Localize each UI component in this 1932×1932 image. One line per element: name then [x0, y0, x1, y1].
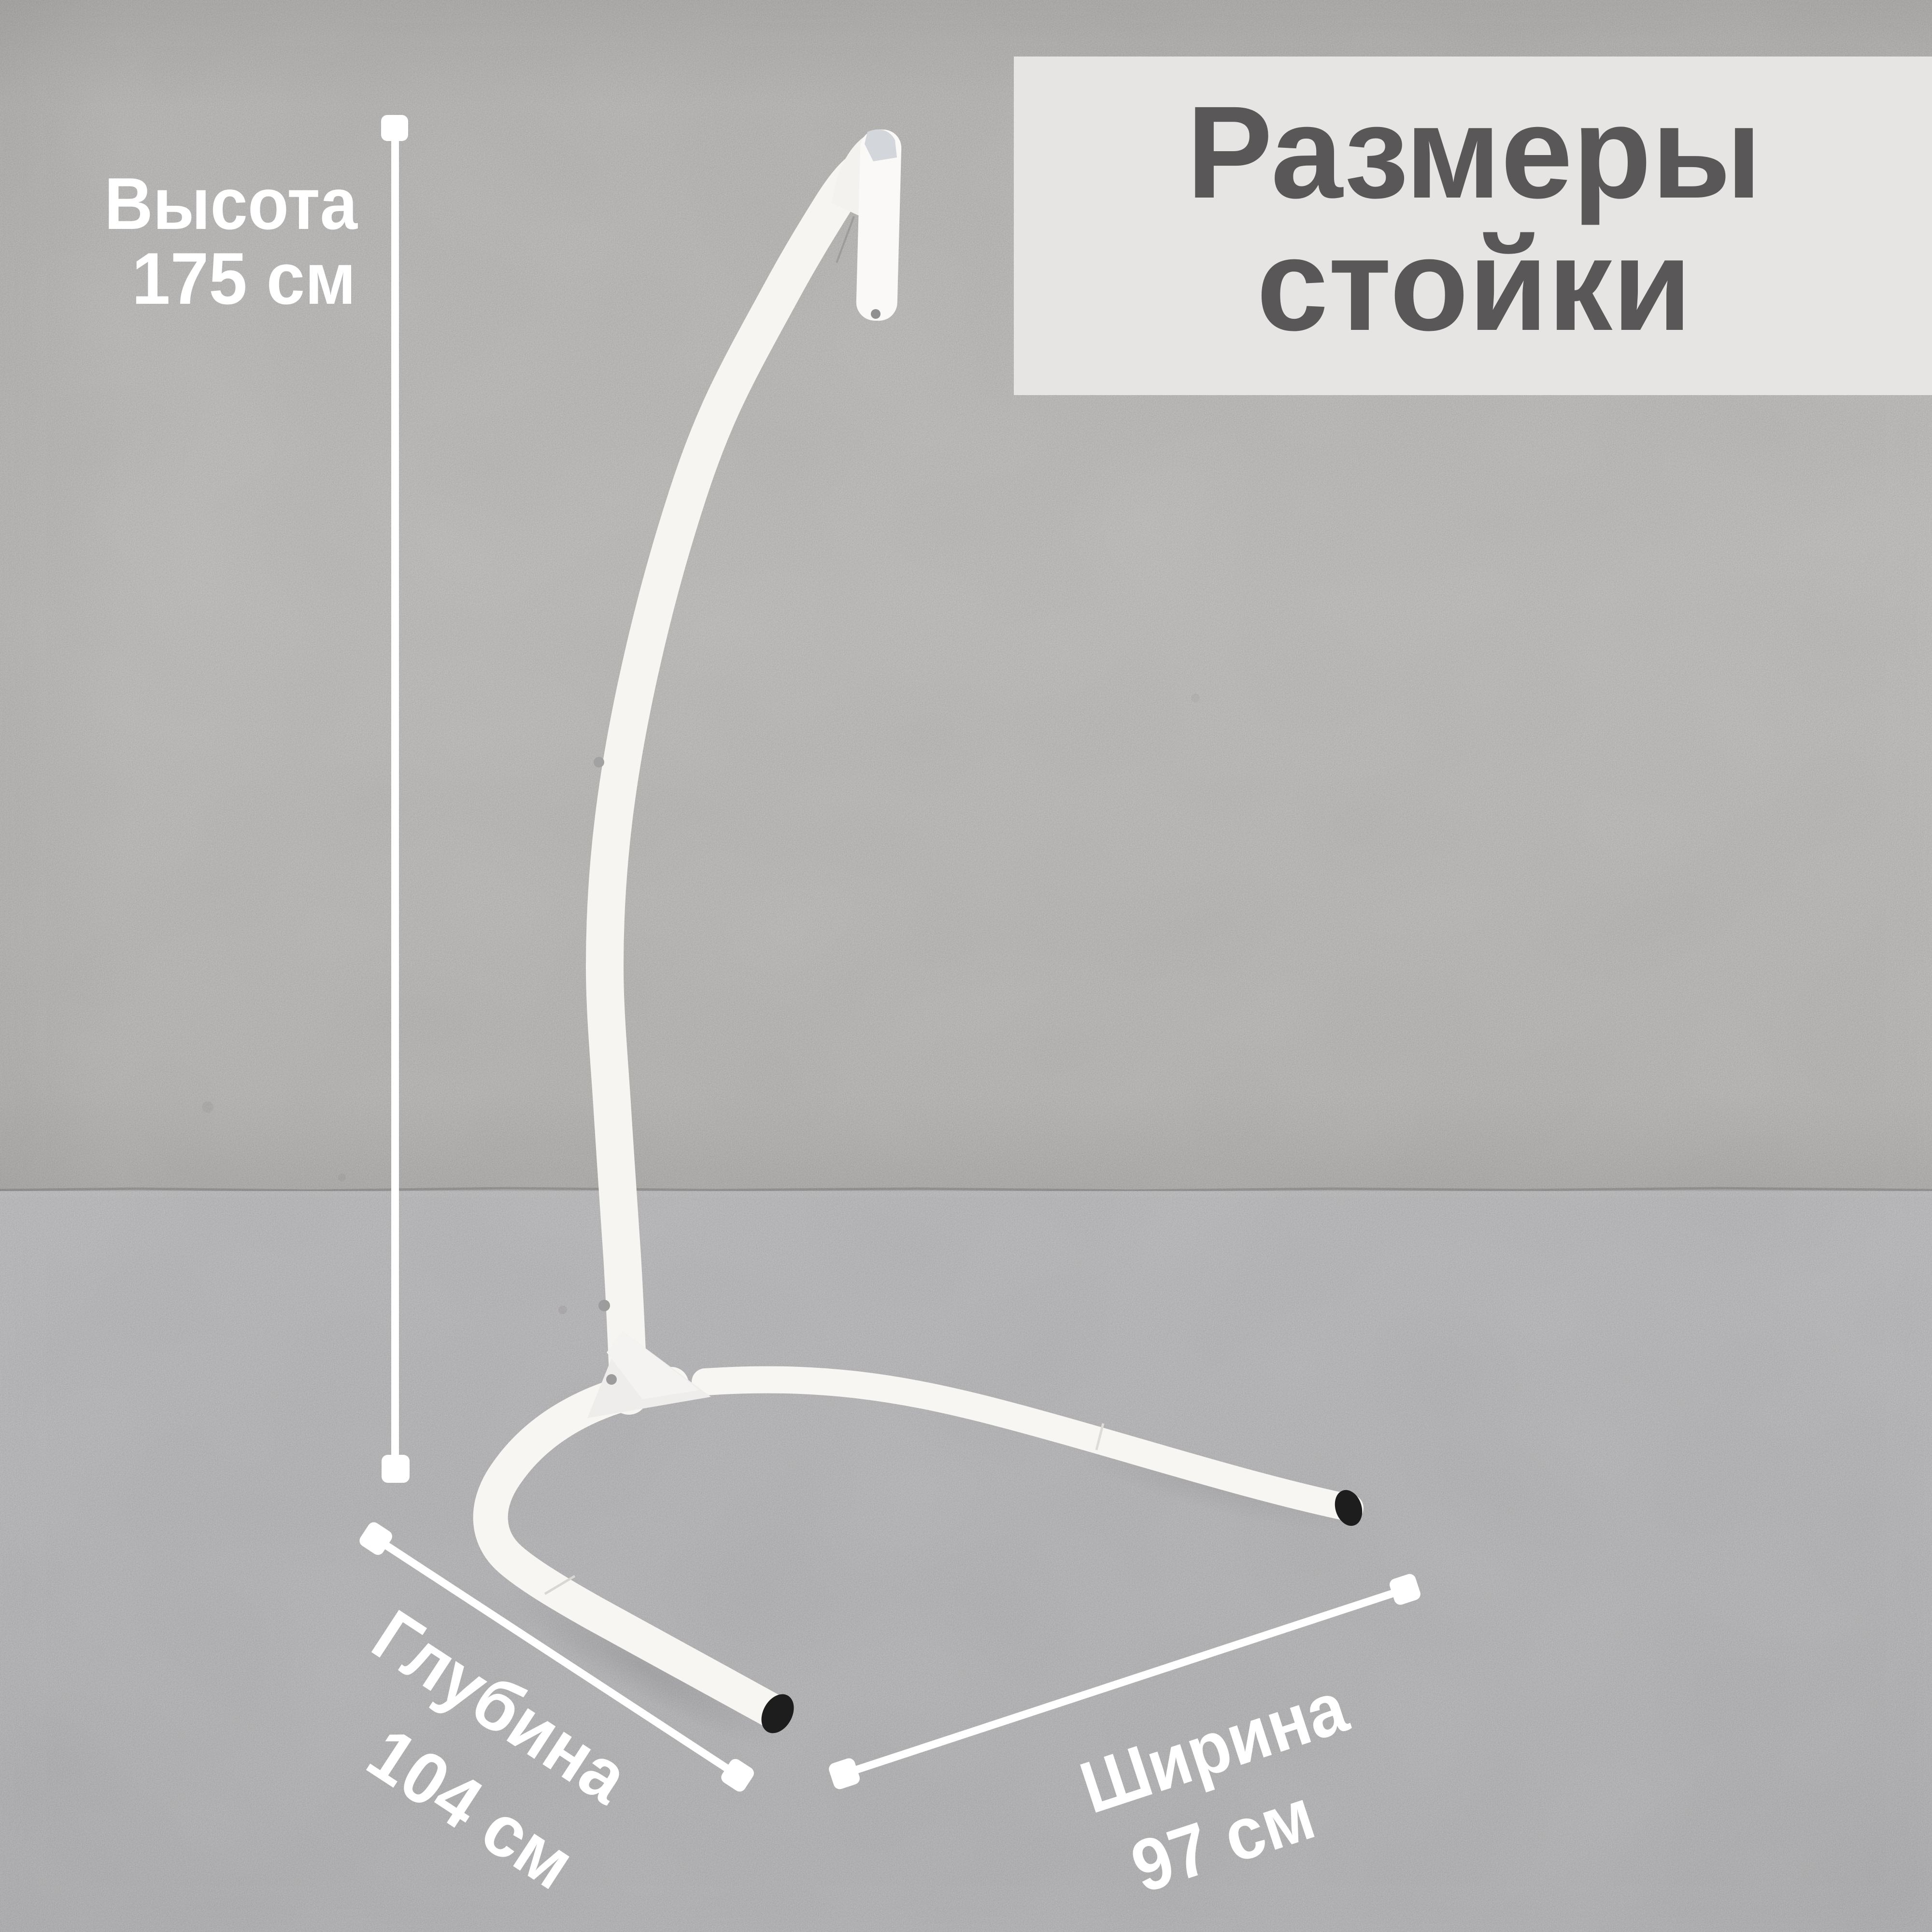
svg-text:Размеры: Размеры	[1187, 79, 1762, 227]
svg-text:175 см: 175 см	[132, 238, 356, 320]
svg-text:стойки: стойки	[1257, 211, 1692, 358]
svg-text:Высота: Высота	[104, 163, 358, 245]
